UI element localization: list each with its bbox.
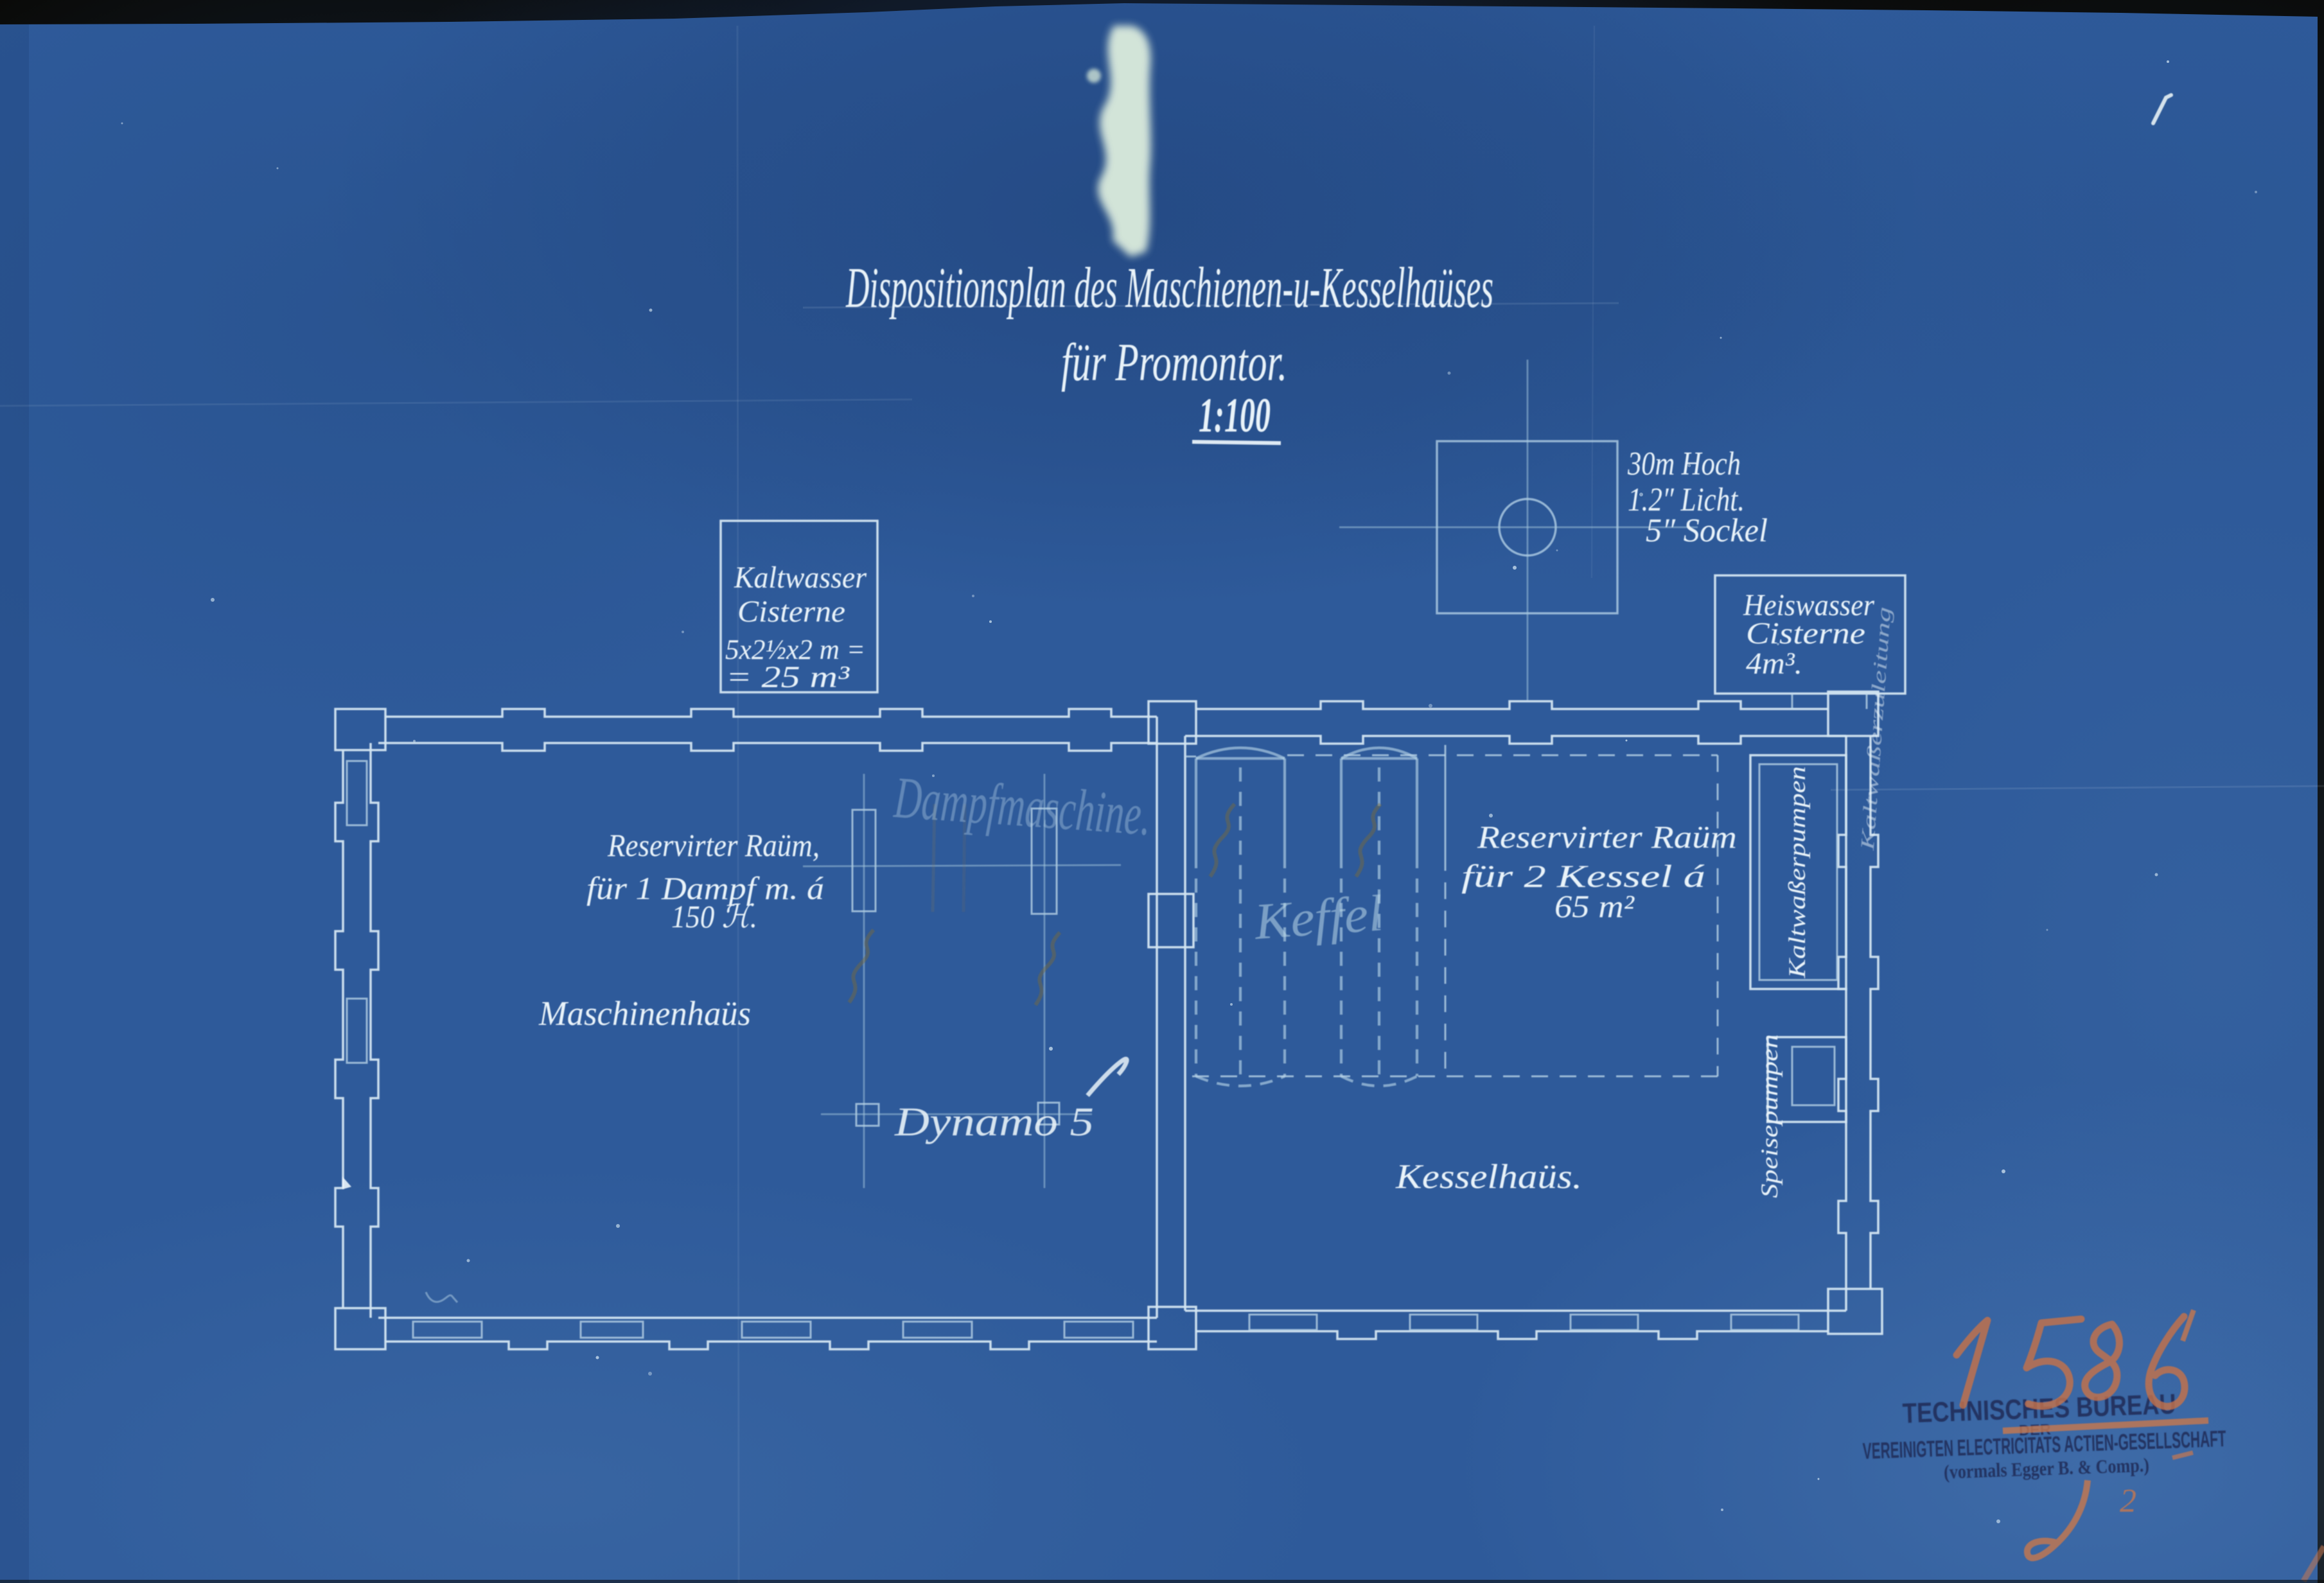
svg-text:65 m²: 65 m² <box>1554 888 1635 924</box>
svg-text:für Promontor.: für Promontor. <box>1061 333 1287 392</box>
svg-text:= 25 m³: = 25 m³ <box>726 660 850 694</box>
svg-text:Kesselhaüs.: Kesselhaüs. <box>1395 1157 1582 1196</box>
svg-text:4m³.: 4m³. <box>1746 647 1802 681</box>
svg-text:150 ℋ.: 150 ℋ. <box>671 898 757 934</box>
svg-text:Kaltwasser: Kaltwasser <box>734 561 867 595</box>
svg-text:2: 2 <box>2120 1483 2136 1519</box>
svg-text:Reservirter Raüm,: Reservirter Raüm, <box>607 827 820 863</box>
svg-text:5″ Sockel: 5″ Sockel <box>1646 512 1768 549</box>
svg-text:Cisterne: Cisterne <box>1746 617 1865 651</box>
svg-text:Dynamo 5: Dynamo 5 <box>894 1099 1094 1144</box>
svg-text:Reservirter Raüm: Reservirter Raüm <box>1477 819 1737 855</box>
svg-text:30m Hoch: 30m Hoch <box>1627 446 1741 482</box>
svg-text:Cisterne: Cisterne <box>737 595 845 629</box>
svg-text:Maschinenhaüs: Maschinenhaüs <box>538 994 751 1033</box>
svg-text:Keffel: Keffel <box>1252 885 1385 950</box>
svg-text:1:100: 1:100 <box>1199 389 1271 442</box>
svg-text:Dispositionsplan des Maschiene: Dispositionsplan des Maschienen-u-Kessel… <box>845 256 1493 320</box>
svg-text:Speisepumpen: Speisepumpen <box>1757 1035 1783 1198</box>
svg-text:Kaltwaßerpumpen: Kaltwaßerpumpen <box>1784 766 1811 979</box>
